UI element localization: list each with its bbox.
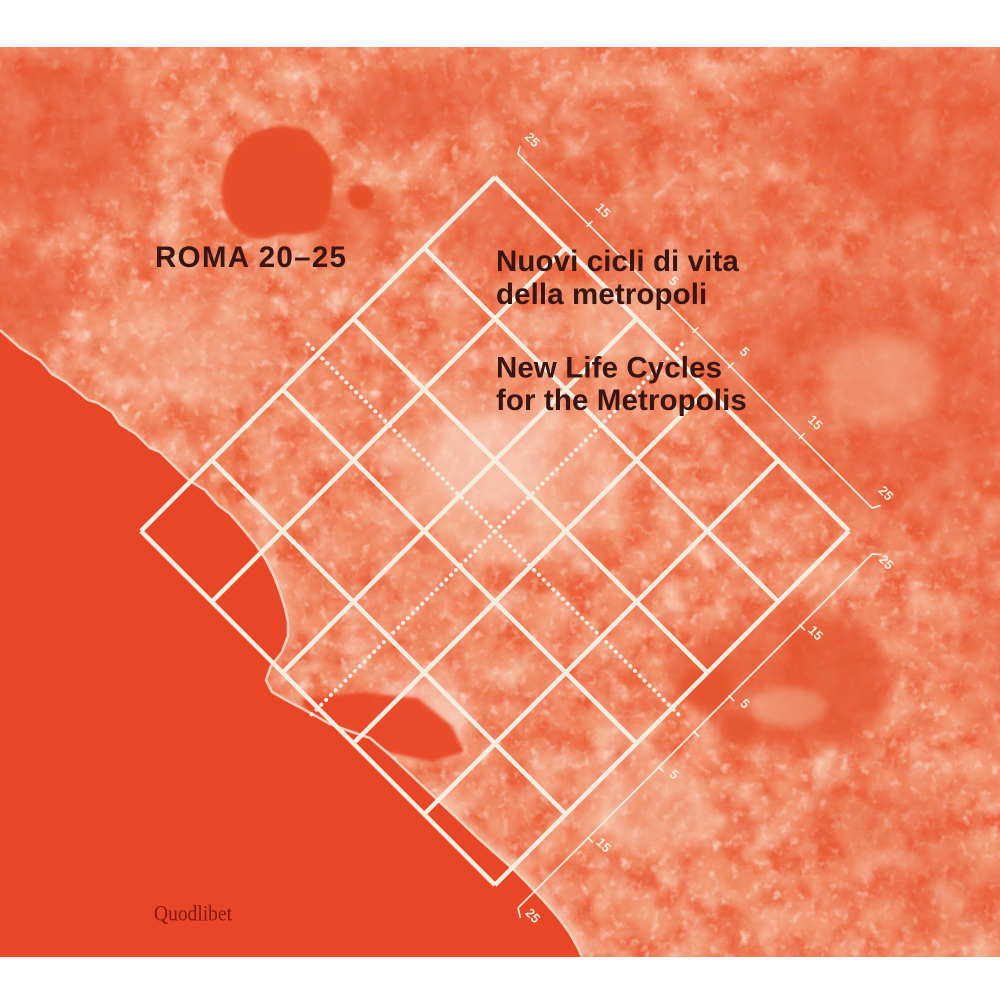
svg-text:ROMA 20–25: ROMA 20–25 [155,241,347,274]
svg-text:Quodlibet: Quodlibet [154,901,233,926]
svg-text:for the Metropolis: for the Metropolis [496,384,747,417]
svg-text:della metropoli: della metropoli [496,278,707,311]
svg-text:Nuovi cicli di vita: Nuovi cicli di vita [496,245,739,278]
svg-text:New Life Cycles: New Life Cycles [496,352,722,385]
